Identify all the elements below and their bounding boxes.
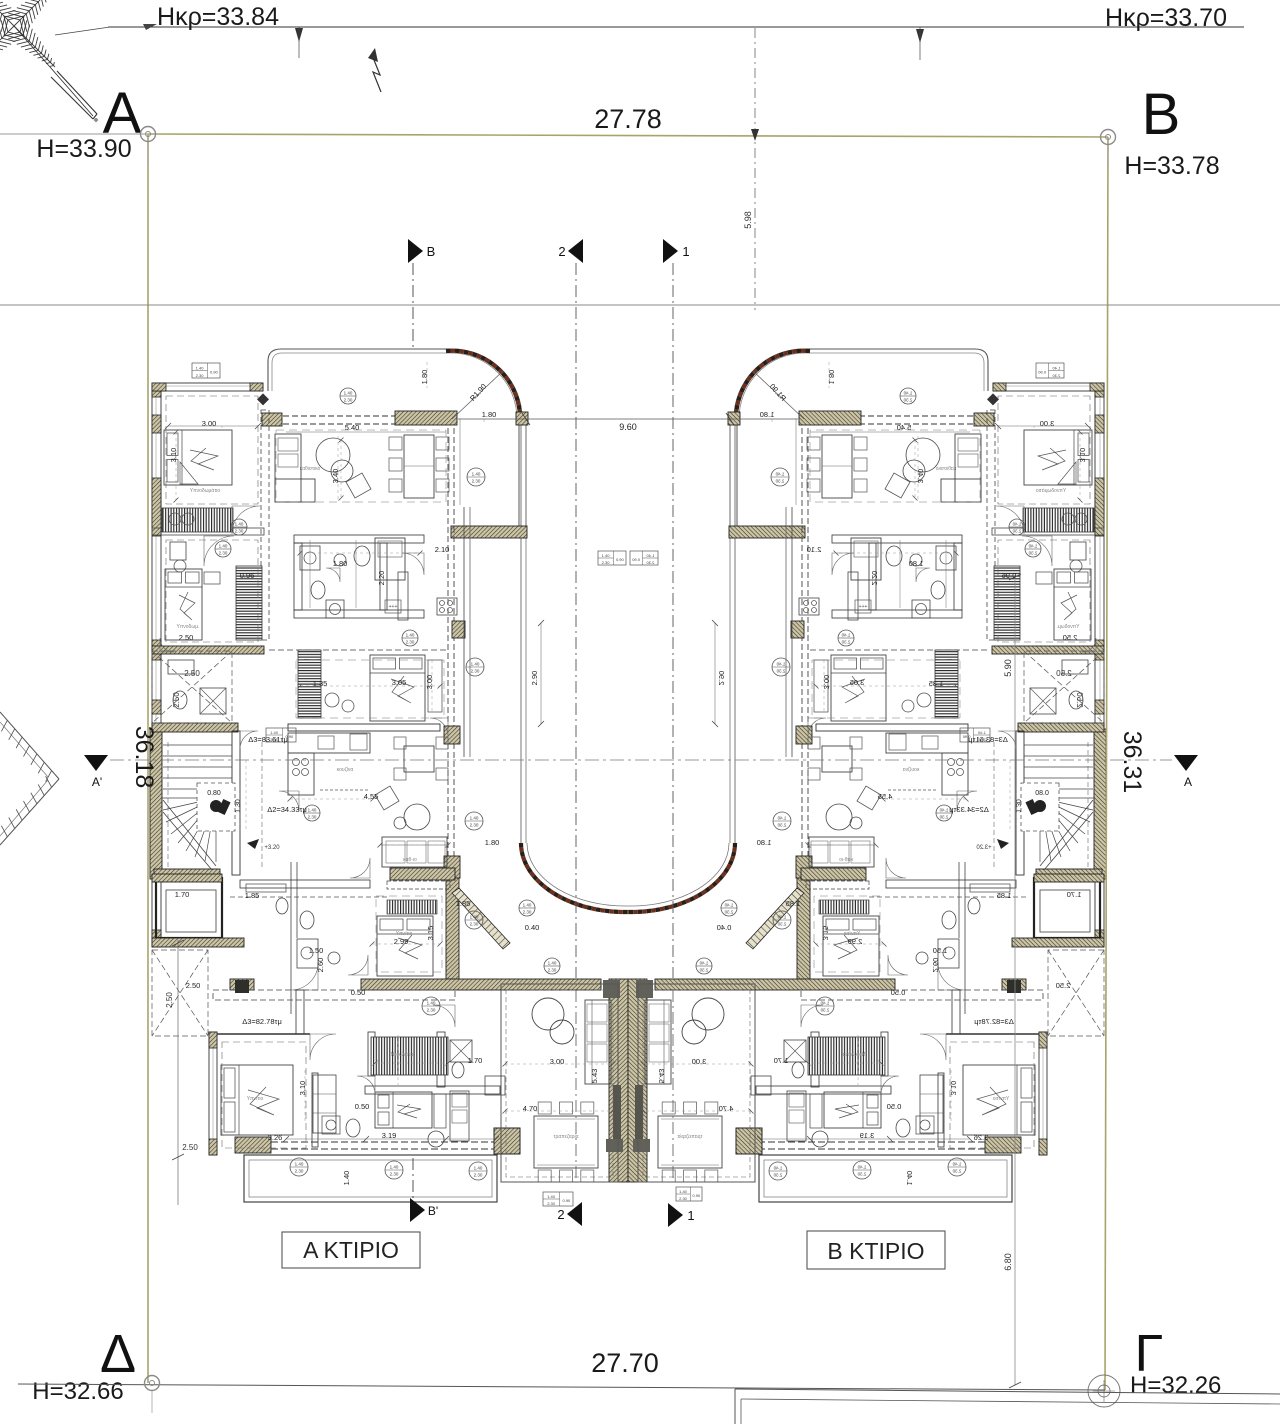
svg-text:6.80: 6.80: [1003, 1253, 1013, 1271]
svg-text:B: B: [427, 244, 436, 259]
svg-text:Ηκρ=33.84: Ηκρ=33.84: [157, 3, 279, 31]
svg-text:27.78: 27.78: [594, 104, 662, 134]
svg-text:H=32.66: H=32.66: [32, 1378, 123, 1405]
svg-text:2.30: 2.30: [547, 1201, 556, 1206]
svg-text:2: 2: [558, 244, 565, 259]
svg-text:0.90: 0.90: [563, 1198, 572, 1203]
svg-text:B ΚΤΙΡΙΟ: B ΚΤΙΡΙΟ: [827, 1238, 924, 1264]
svg-text:36.18: 36.18: [130, 726, 158, 789]
svg-text:A ΚΤΙΡΙΟ: A ΚΤΙΡΙΟ: [303, 1237, 399, 1263]
svg-text:36.31: 36.31: [1118, 731, 1146, 794]
svg-text:Δ: Δ: [100, 1324, 136, 1384]
svg-text:5.98: 5.98: [743, 211, 753, 229]
svg-text:Ηκρ=33.70: Ηκρ=33.70: [1105, 4, 1227, 32]
svg-text:1.40: 1.40: [679, 1189, 688, 1194]
svg-text:27.70: 27.70: [591, 1348, 659, 1378]
svg-text:2: 2: [557, 1207, 564, 1222]
svg-text:9.60: 9.60: [619, 422, 637, 432]
svg-text:H=33.90: H=33.90: [36, 135, 131, 163]
svg-text:2.50: 2.50: [182, 1143, 198, 1152]
svg-text:A: A: [1184, 775, 1192, 789]
svg-text:1: 1: [682, 244, 689, 259]
svg-text:2.30: 2.30: [679, 1196, 688, 1201]
svg-text:B: B: [1142, 82, 1181, 147]
svg-text:0.90: 0.90: [692, 1193, 701, 1198]
svg-text:B': B': [428, 1204, 438, 1218]
svg-text:H=32.26: H=32.26: [1130, 1372, 1221, 1399]
svg-text:1: 1: [687, 1208, 694, 1223]
svg-text:5.90: 5.90: [1003, 659, 1013, 677]
svg-text:H=33.78: H=33.78: [1124, 152, 1219, 180]
svg-text:1.40: 1.40: [547, 1194, 556, 1199]
svg-text:2.50: 2.50: [165, 992, 174, 1008]
svg-text:A': A': [92, 775, 102, 789]
